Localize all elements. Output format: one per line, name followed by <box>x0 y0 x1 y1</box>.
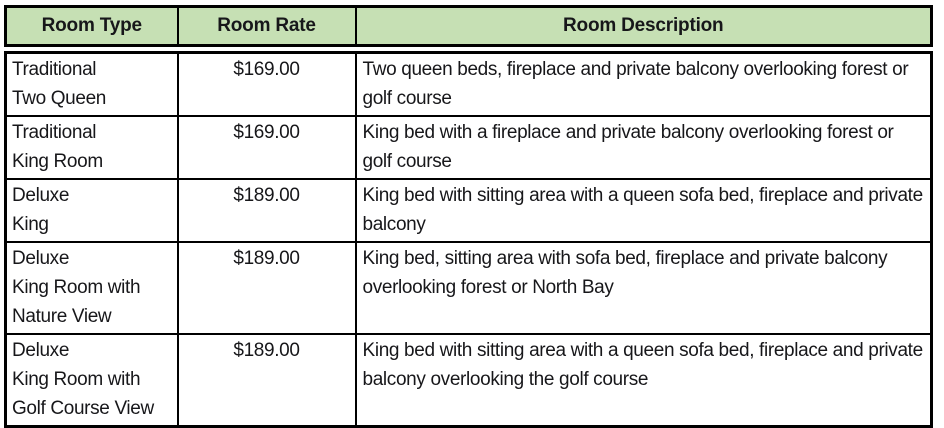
room-rates-body: Traditional Two Queen $169.00 Two queen … <box>4 51 933 428</box>
room-rate-cell: $169.00 <box>178 53 356 117</box>
room-description-cell: King bed with sitting area with a queen … <box>356 334 932 427</box>
column-header-room-description: Room Description <box>356 7 932 46</box>
room-description-cell: King bed with sitting area with a queen … <box>356 179 932 242</box>
room-type-line: Deluxe <box>12 336 173 365</box>
room-rate-cell: $189.00 <box>178 334 356 427</box>
room-type-line: Two Queen <box>12 84 173 113</box>
room-rates-header-row: Room Type Room Rate Room Description <box>4 5 933 47</box>
room-type-cell: Deluxe King Room with Golf Course View <box>6 334 178 427</box>
room-description-cell: King bed with a fireplace and private ba… <box>356 116 932 179</box>
room-type-line: King <box>12 210 173 239</box>
room-type-line: Traditional <box>12 118 173 147</box>
room-description-cell: Two queen beds, fireplace and private ba… <box>356 53 932 117</box>
room-rates-document: Room Type Room Rate Room Description Tra… <box>0 0 944 428</box>
room-type-line: Deluxe <box>12 181 173 210</box>
room-type-line: Golf Course View <box>12 394 173 423</box>
room-type-line: Deluxe <box>12 244 173 273</box>
room-type-line: King Room with <box>12 273 173 302</box>
room-rate-cell: $169.00 <box>178 116 356 179</box>
room-type-line: King Room with <box>12 365 173 394</box>
room-type-line: King Room <box>12 147 173 176</box>
room-rate-cell: $189.00 <box>178 242 356 334</box>
table-row: Deluxe King Room with Nature View $189.0… <box>6 242 932 334</box>
table-row: Traditional Two Queen $169.00 Two queen … <box>6 53 932 117</box>
room-rate-cell: $189.00 <box>178 179 356 242</box>
room-type-line: Traditional <box>12 55 173 84</box>
table-row: Deluxe King Room with Golf Course View $… <box>6 334 932 427</box>
table-row: Traditional King Room $169.00 King bed w… <box>6 116 932 179</box>
room-type-cell: Traditional King Room <box>6 116 178 179</box>
column-header-room-type: Room Type <box>6 7 178 46</box>
room-type-cell: Deluxe King Room with Nature View <box>6 242 178 334</box>
column-header-room-rate: Room Rate <box>178 7 356 46</box>
room-description-cell: King bed, sitting area with sofa bed, fi… <box>356 242 932 334</box>
table-row: Deluxe King $189.00 King bed with sittin… <box>6 179 932 242</box>
room-type-cell: Traditional Two Queen <box>6 53 178 117</box>
room-type-line: Nature View <box>12 302 173 331</box>
room-type-cell: Deluxe King <box>6 179 178 242</box>
